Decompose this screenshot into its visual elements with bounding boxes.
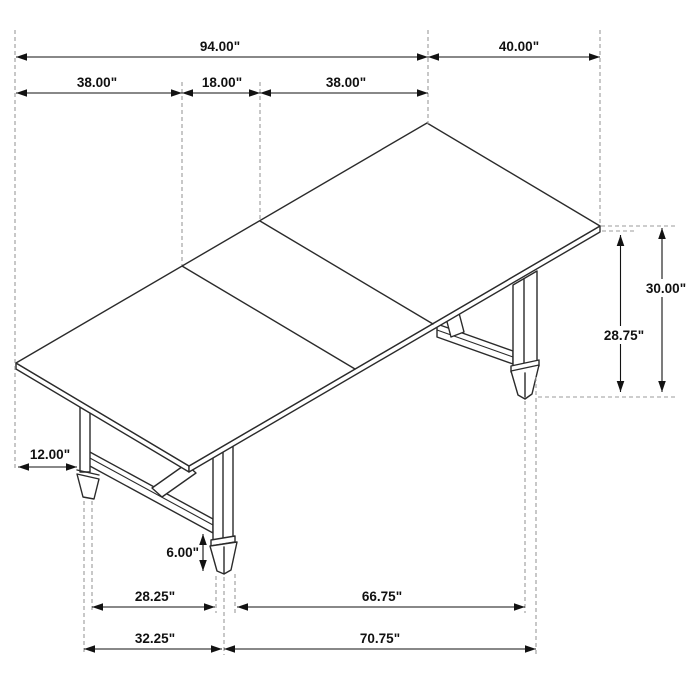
dim-label-trestle-span-inner: 28.25" [135,589,175,604]
dim-center-leaf: 18.00" [182,75,260,97]
arrowhead [417,89,428,97]
arrowhead [658,228,666,239]
right-stretcher-top-edge [437,330,513,357]
arrowhead [18,463,29,471]
arrowhead [417,53,428,61]
dim-label-leg-inset: 12.00" [30,447,70,462]
arrowhead [16,53,27,61]
arrowhead [617,381,625,392]
arrowhead [617,235,625,246]
arrowhead [249,89,260,97]
dim-overall-length: 94.00" [16,39,428,61]
arrowhead [204,603,215,611]
dim-front-span-inner: 66.75" [237,589,525,611]
arrowhead [658,381,666,392]
dim-label-front-span-outer: 70.75" [360,631,400,646]
dim-label-front-span-inner: 66.75" [362,589,402,604]
arrowhead [525,645,536,653]
arrowhead [224,645,235,653]
dim-underside-clearance: 28.75" [598,235,651,392]
arrowhead [171,89,182,97]
arrowhead [199,560,207,571]
dim-front-span-outer: 70.75" [224,631,536,653]
dimension-drawing-canvas: 94.00" 40.00" 38.00" 18.00" 38.00" 28.75… [0,0,700,700]
arrowhead [199,534,207,545]
arrowhead [428,53,439,61]
dim-right-section: 38.00" [260,75,428,97]
dim-left-section: 38.00" [16,75,182,97]
dim-label-foot-height: 6.00" [166,545,199,560]
back-left-leg-foot [77,474,99,499]
dim-trestle-span-inner: 28.25" [92,589,215,611]
dim-label-underside-clearance: 28.75" [604,328,644,343]
arrowhead [84,645,95,653]
arrowhead [589,53,600,61]
dim-label-left-section: 38.00" [77,75,117,90]
arrowhead [211,645,222,653]
back-left-leg-post [80,407,90,472]
dim-label-trestle-span-outer: 32.25" [135,631,175,646]
dim-label-center-leaf: 18.00" [202,75,242,90]
dim-trestle-span-outer: 32.25" [84,631,222,653]
dim-label-overall-length: 94.00" [200,39,240,54]
dim-label-table-height: 30.00" [646,281,686,296]
dim-label-right-section: 38.00" [326,75,366,90]
arrowhead [16,89,27,97]
arrowhead [66,463,77,471]
dim-leg-inset: 12.00" [18,447,77,471]
arrowhead [237,603,248,611]
dim-label-end-extension: 40.00" [499,39,539,54]
front-right-leg-post [513,271,537,366]
arrowhead [182,89,193,97]
arrowhead [514,603,525,611]
arrowhead [92,603,103,611]
dim-end-extension: 40.00" [428,39,600,61]
dim-foot-height: 6.00" [166,534,206,571]
dim-table-height: 30.00" [640,228,693,392]
arrowhead [260,89,271,97]
table-dimension-diagram: 94.00" 40.00" 38.00" 18.00" 38.00" 28.75… [0,0,700,700]
